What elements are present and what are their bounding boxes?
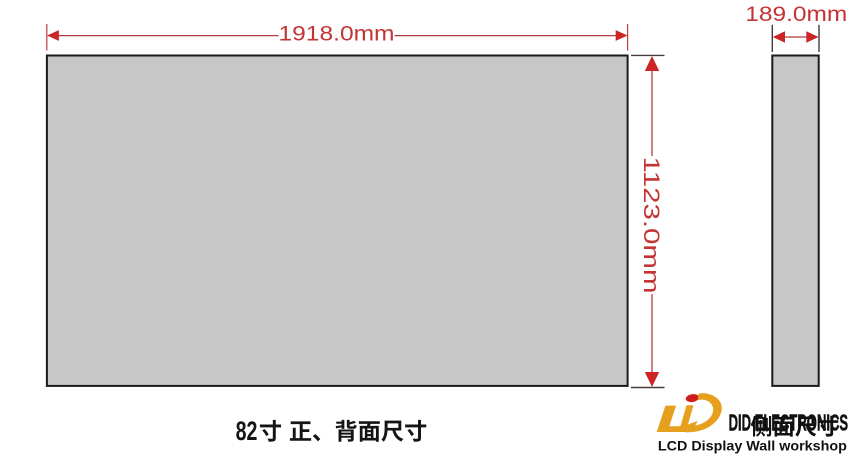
svg-text:1918.0mm: 1918.0mm	[279, 22, 395, 45]
svg-text:82: 82	[236, 416, 258, 446]
svg-text:189.0mm: 189.0mm	[745, 2, 847, 26]
svg-text:1123.0mm: 1123.0mm	[639, 157, 664, 294]
svg-text:LCD Display Wall workshop: LCD Display Wall workshop	[658, 438, 847, 453]
